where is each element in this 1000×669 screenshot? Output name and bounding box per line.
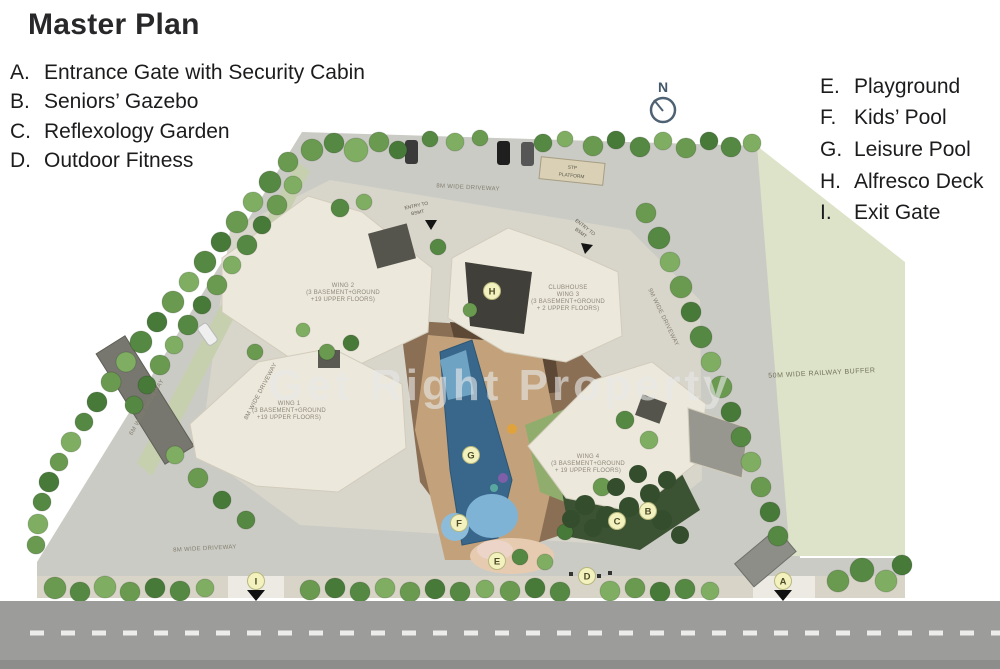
tree xyxy=(369,132,389,152)
tree xyxy=(654,132,672,150)
tree xyxy=(145,578,165,598)
legend-label: Seniors’ Gazebo xyxy=(44,90,198,114)
tree xyxy=(27,536,45,554)
bush xyxy=(640,484,660,504)
svg-text:(3 BASEMENT+GROUND: (3 BASEMENT+GROUND xyxy=(531,299,605,305)
svg-text:+ 2 UPPER FLOORS): + 2 UPPER FLOORS) xyxy=(537,306,600,312)
svg-text:C: C xyxy=(614,517,621,528)
svg-text:(3 BASEMENT+GROUND: (3 BASEMENT+GROUND xyxy=(306,290,380,296)
marker-kids-pool: F xyxy=(451,515,468,532)
tree xyxy=(296,323,310,337)
svg-text:(3 BASEMENT+GROUND: (3 BASEMENT+GROUND xyxy=(551,461,625,467)
tree xyxy=(616,411,634,429)
tree xyxy=(640,431,658,449)
bush xyxy=(562,510,580,528)
svg-text:H: H xyxy=(489,287,496,298)
legend-label: Outdoor Fitness xyxy=(44,149,193,173)
tree xyxy=(534,134,552,152)
tree xyxy=(226,211,248,233)
compass-needle xyxy=(654,100,663,111)
play-equipment xyxy=(507,424,517,434)
compass-north-label: N xyxy=(658,79,668,95)
bush xyxy=(584,519,602,537)
legend-item-playground: E. Playground xyxy=(820,71,984,103)
bush xyxy=(629,465,647,483)
tree xyxy=(179,272,199,292)
marker-reflexology-garden: C xyxy=(609,513,626,530)
tree xyxy=(237,235,257,255)
legend-key: D. xyxy=(10,149,44,173)
tree xyxy=(375,578,395,598)
tree xyxy=(170,581,190,601)
legend-key: A. xyxy=(10,61,44,85)
legend-key: I. xyxy=(820,201,854,225)
tree xyxy=(751,477,771,497)
legend-label: Alfresco Deck xyxy=(854,170,984,194)
legend-key: H. xyxy=(820,170,854,194)
svg-text:+19 UPPER FLOORS): +19 UPPER FLOORS) xyxy=(311,297,375,303)
play-equipment xyxy=(498,473,508,483)
svg-text:I: I xyxy=(255,577,258,588)
legend-key: G. xyxy=(820,138,854,162)
watermark: Get Right Property xyxy=(268,361,731,410)
legend-key: C. xyxy=(10,120,44,144)
legend-item-outdoor-fitness: D. Outdoor Fitness xyxy=(10,147,365,177)
marker-alfresco-deck: H xyxy=(484,283,501,300)
tree xyxy=(768,526,788,546)
tree xyxy=(223,256,241,274)
tree xyxy=(343,335,359,351)
tree xyxy=(356,194,372,210)
tree xyxy=(196,579,214,597)
legend-key: B. xyxy=(10,90,44,114)
tree xyxy=(147,312,167,332)
svg-text:WING 3: WING 3 xyxy=(557,292,580,298)
tree xyxy=(94,576,116,598)
legend-item-reflexology-garden: C. Reflexology Garden xyxy=(10,117,365,147)
tree xyxy=(625,578,645,598)
tree xyxy=(247,344,263,360)
tree xyxy=(700,132,718,150)
tree xyxy=(211,232,231,252)
tree xyxy=(193,296,211,314)
tree xyxy=(207,275,227,295)
tree xyxy=(892,555,912,575)
tree xyxy=(681,302,701,322)
tree xyxy=(557,131,573,147)
legend-item-leisure-pool: G. Leisure Pool xyxy=(820,134,984,166)
tree xyxy=(550,582,570,602)
tree xyxy=(33,493,51,511)
svg-text:F: F xyxy=(456,519,462,530)
tree xyxy=(331,199,349,217)
svg-text:+19 UPPER FLOORS): +19 UPPER FLOORS) xyxy=(257,415,321,421)
tree xyxy=(721,137,741,157)
tree xyxy=(350,582,370,602)
bush xyxy=(658,471,676,489)
stp-label-1: STP xyxy=(567,165,577,172)
tree xyxy=(660,252,680,272)
page-title: Master Plan xyxy=(28,8,200,42)
tree xyxy=(850,558,874,582)
svg-text:WING 2: WING 2 xyxy=(332,283,355,289)
tree xyxy=(50,453,68,471)
legend-left: A. Entrance Gate with Security Cabin B. … xyxy=(10,58,365,176)
tree xyxy=(583,136,603,156)
tree xyxy=(400,582,420,602)
tree xyxy=(162,291,184,313)
tree xyxy=(150,355,170,375)
tree xyxy=(70,582,90,602)
tree xyxy=(300,580,320,600)
marker-seniors-gazebo: B xyxy=(640,503,657,520)
tree xyxy=(446,133,464,151)
tree xyxy=(670,276,692,298)
svg-text:G: G xyxy=(467,451,474,462)
tree xyxy=(194,251,216,273)
bush xyxy=(671,526,689,544)
tree xyxy=(319,344,335,360)
marker-playground: E xyxy=(489,553,506,570)
tree xyxy=(648,227,670,249)
tree xyxy=(267,195,287,215)
tree xyxy=(743,134,761,152)
legend-key: E. xyxy=(820,75,854,99)
tree xyxy=(284,176,302,194)
legend-item-kids-pool: F. Kids’ Pool xyxy=(820,103,984,135)
tree xyxy=(537,554,553,570)
tree xyxy=(39,472,59,492)
tree xyxy=(425,579,445,599)
parked-car xyxy=(497,141,510,165)
tree xyxy=(243,192,263,212)
tree xyxy=(476,580,494,598)
svg-text:D: D xyxy=(584,572,591,583)
tree xyxy=(44,577,66,599)
marker-leisure-pool: G xyxy=(463,447,480,464)
tree xyxy=(512,549,528,565)
marker-exit-gate: I xyxy=(248,573,265,590)
fitness-equipment xyxy=(608,571,612,575)
tree xyxy=(600,581,620,601)
tree xyxy=(676,138,696,158)
tree xyxy=(165,336,183,354)
fitness-equipment xyxy=(597,574,601,578)
fitness-equipment xyxy=(569,572,573,576)
tree xyxy=(525,578,545,598)
tree xyxy=(166,446,184,464)
svg-text:+ 19 UPPER FLOORS): + 19 UPPER FLOORS) xyxy=(555,468,621,474)
play-equipment xyxy=(490,484,498,492)
svg-text:CLUBHOUSE: CLUBHOUSE xyxy=(548,285,587,291)
master-plan-page: STP PLATFORM ENTRY TO BSMT ENTRY TO BSMT… xyxy=(0,0,1000,669)
tree xyxy=(636,203,656,223)
legend-label: Reflexology Garden xyxy=(44,120,230,144)
tree xyxy=(422,131,438,147)
tree xyxy=(690,326,712,348)
tree xyxy=(61,432,81,452)
tree xyxy=(178,315,198,335)
legend-item-seniors-gazebo: B. Seniors’ Gazebo xyxy=(10,88,365,118)
tree xyxy=(75,413,93,431)
tree xyxy=(101,372,121,392)
tree xyxy=(650,582,670,602)
legend-label: Entrance Gate with Security Cabin xyxy=(44,61,365,85)
tree xyxy=(675,579,695,599)
road-edge xyxy=(0,660,1000,669)
svg-text:A: A xyxy=(780,577,787,588)
svg-text:B: B xyxy=(645,507,652,518)
tree xyxy=(213,491,231,509)
bush xyxy=(575,495,595,515)
tree xyxy=(237,511,255,529)
tree xyxy=(120,582,140,602)
tree xyxy=(389,141,407,159)
legend-item-entrance-gate: A. Entrance Gate with Security Cabin xyxy=(10,58,365,88)
legend-item-alfresco-deck: H. Alfresco Deck xyxy=(820,166,984,198)
tree xyxy=(430,239,446,255)
tree xyxy=(827,570,849,592)
legend-key: F. xyxy=(820,106,854,130)
tree xyxy=(253,216,271,234)
legend-label: Leisure Pool xyxy=(854,138,971,162)
compass: N xyxy=(651,79,675,122)
tree xyxy=(28,514,48,534)
tree xyxy=(125,396,143,414)
tree xyxy=(116,352,136,372)
tree xyxy=(607,131,625,149)
tree xyxy=(500,581,520,601)
tree xyxy=(701,582,719,600)
bush xyxy=(607,478,625,496)
tree xyxy=(731,427,751,447)
tree xyxy=(463,303,477,317)
tree xyxy=(875,570,897,592)
marker-outdoor-fitness: D xyxy=(579,568,596,585)
svg-text:WING 4: WING 4 xyxy=(577,454,600,460)
tree xyxy=(472,130,488,146)
legend-right: E. Playground F. Kids’ Pool G. Leisure P… xyxy=(820,71,984,229)
legend-label: Exit Gate xyxy=(854,201,940,225)
legend-label: Playground xyxy=(854,75,960,99)
svg-text:E: E xyxy=(494,557,500,568)
tree xyxy=(87,392,107,412)
legend-label: Kids’ Pool xyxy=(854,106,947,130)
tree xyxy=(450,582,470,602)
kids-pool xyxy=(466,494,518,538)
tree xyxy=(760,502,780,522)
tree xyxy=(630,137,650,157)
alfresco-deck-roof xyxy=(465,262,532,334)
legend-item-exit-gate: I. Exit Gate xyxy=(820,197,984,229)
tree xyxy=(741,452,761,472)
tree xyxy=(188,468,208,488)
marker-entrance-gate: A xyxy=(775,573,792,590)
parked-car xyxy=(521,142,534,166)
tree xyxy=(325,578,345,598)
tree xyxy=(130,331,152,353)
